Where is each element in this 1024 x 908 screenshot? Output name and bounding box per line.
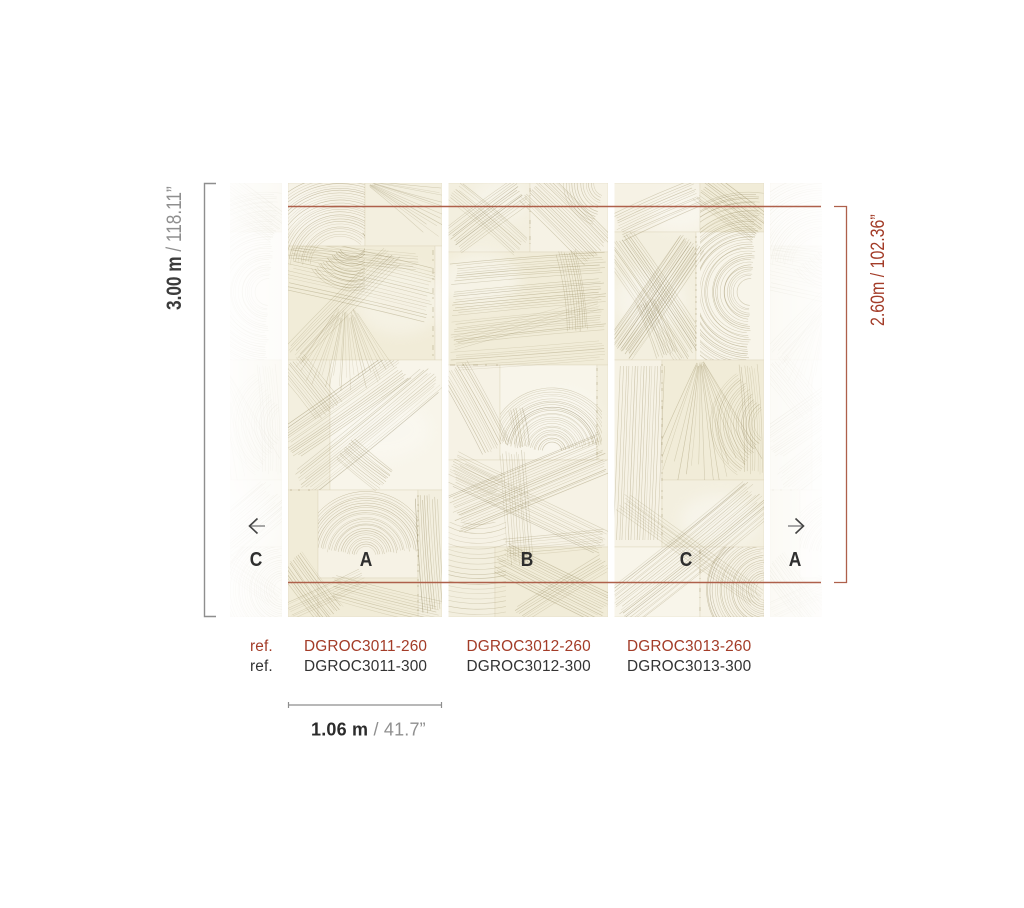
svg-text:ref.: ref. bbox=[250, 658, 273, 675]
svg-text:DGROC3013-300: DGROC3013-300 bbox=[627, 658, 751, 675]
svg-text:DGROC3012-300: DGROC3012-300 bbox=[467, 658, 591, 675]
svg-text:ref.: ref. bbox=[250, 638, 273, 655]
svg-text:DGROC3013-260: DGROC3013-260 bbox=[627, 638, 751, 655]
svg-text:2.60m / 102.36”: 2.60m / 102.36” bbox=[867, 214, 889, 326]
svg-text:C: C bbox=[250, 549, 263, 572]
svg-text:1.06 m / 41.7”: 1.06 m / 41.7” bbox=[311, 720, 426, 740]
svg-text:DGROC3011-260: DGROC3011-260 bbox=[304, 638, 427, 655]
svg-text:A: A bbox=[789, 549, 802, 572]
svg-text:DGROC3011-300: DGROC3011-300 bbox=[304, 658, 427, 675]
svg-text:DGROC3012-260: DGROC3012-260 bbox=[467, 638, 591, 655]
svg-text:B: B bbox=[521, 549, 534, 572]
svg-text:C: C bbox=[680, 549, 693, 572]
svg-text:3.00 m / 118.11”: 3.00 m / 118.11” bbox=[164, 186, 187, 310]
svg-text:A: A bbox=[360, 549, 373, 572]
